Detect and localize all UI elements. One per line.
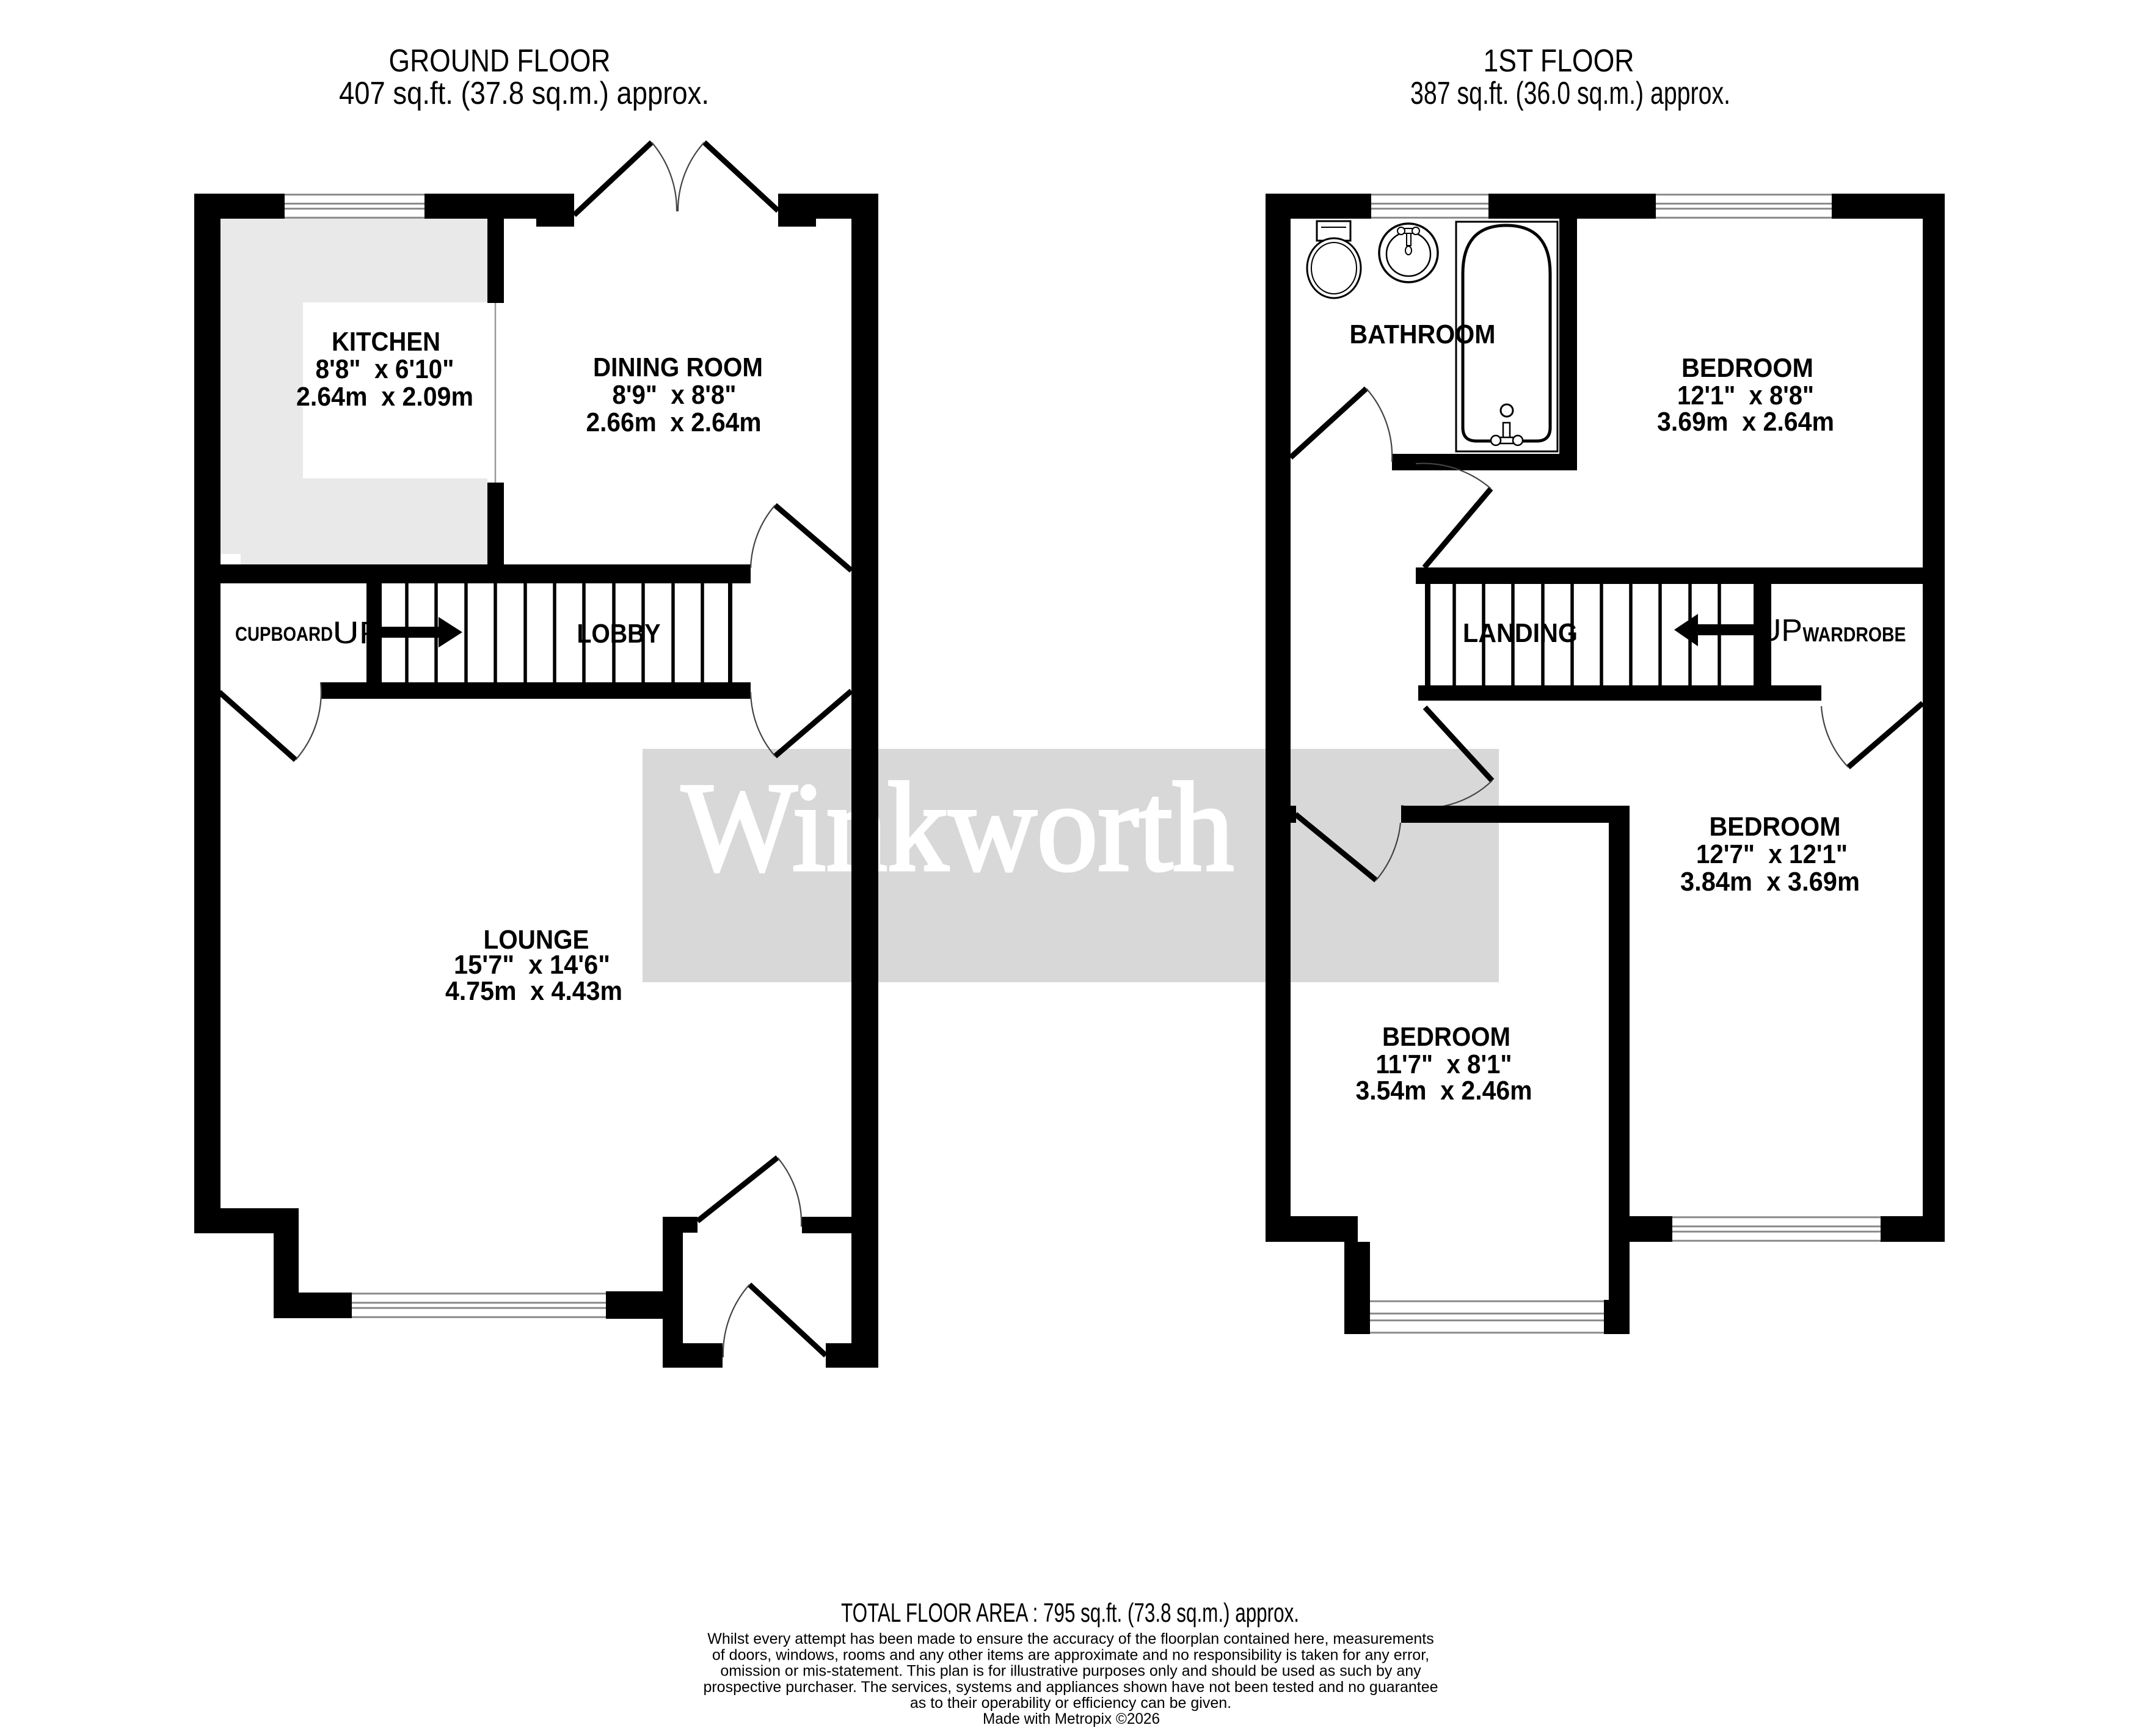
svg-text:387 sq.ft. (36.0 sq.m.) approx: 387 sq.ft. (36.0 sq.m.) approx.	[1410, 76, 1730, 111]
svg-text:LANDING: LANDING	[1463, 618, 1578, 648]
svg-text:8'8" x 6'10": 8'8" x 6'10"	[316, 354, 454, 384]
svg-text:8'9" x 8'8": 8'9" x 8'8"	[613, 380, 737, 410]
svg-text:3.84m x 3.69m: 3.84m x 3.69m	[1680, 867, 1860, 897]
svg-text:3.69m x 2.64m: 3.69m x 2.64m	[1657, 407, 1834, 437]
svg-text:of doors, windows, rooms and a: of doors, windows, rooms and any other i…	[712, 1646, 1429, 1663]
svg-text:omission or mis-statement. Thi: omission or mis-statement. This plan is …	[720, 1663, 1421, 1680]
svg-text:BEDROOM: BEDROOM	[1382, 1022, 1510, 1052]
svg-text:KITCHEN: KITCHEN	[332, 327, 440, 357]
svg-text:12'7" x 12'1": 12'7" x 12'1"	[1696, 839, 1848, 869]
svg-text:11'7" x 8'1": 11'7" x 8'1"	[1376, 1049, 1512, 1079]
svg-text:GROUND FLOOR: GROUND FLOOR	[389, 43, 611, 79]
svg-text:3.54m x 2.46m: 3.54m x 2.46m	[1356, 1076, 1532, 1106]
svg-text:CUPBOARD: CUPBOARD	[235, 623, 333, 645]
svg-text:4.75m x 4.43m: 4.75m x 4.43m	[445, 976, 622, 1006]
svg-text:12'1" x 8'8": 12'1" x 8'8"	[1677, 381, 1814, 410]
svg-text:Winkworth: Winkworth	[682, 757, 1234, 897]
svg-text:WARDROBE: WARDROBE	[1803, 623, 1906, 646]
svg-text:BEDROOM: BEDROOM	[1681, 353, 1813, 383]
svg-text:LOBBY: LOBBY	[577, 619, 661, 649]
svg-text:2.66m x 2.64m: 2.66m x 2.64m	[586, 407, 762, 437]
svg-text:DINING ROOM: DINING ROOM	[593, 352, 763, 382]
svg-text:1ST FLOOR: 1ST FLOOR	[1484, 43, 1634, 79]
svg-text:TOTAL FLOOR AREA : 795 sq.ft.: TOTAL FLOOR AREA : 795 sq.ft. (73.8 sq.m…	[841, 1598, 1299, 1628]
svg-text:2.64m x 2.09m: 2.64m x 2.09m	[296, 382, 473, 412]
svg-text:15'7" x 14'6": 15'7" x 14'6"	[454, 950, 610, 980]
svg-text:BEDROOM: BEDROOM	[1710, 812, 1841, 842]
svg-text:as to their operability or eff: as to their operability or efficiency ca…	[910, 1694, 1231, 1712]
svg-text:UP: UP	[333, 615, 384, 650]
svg-text:UP: UP	[1758, 613, 1802, 647]
svg-text:BATHROOM: BATHROOM	[1350, 319, 1496, 349]
svg-text:prospective purchaser. The ser: prospective purchaser. The services, sys…	[703, 1679, 1438, 1696]
svg-text:Made with Metropix ©2026: Made with Metropix ©2026	[983, 1710, 1160, 1727]
svg-text:Whilst every attempt has been: Whilst every attempt has been made to en…	[707, 1630, 1434, 1647]
svg-text:407 sq.ft. (37.8 sq.m.) approx: 407 sq.ft. (37.8 sq.m.) approx.	[339, 76, 709, 111]
